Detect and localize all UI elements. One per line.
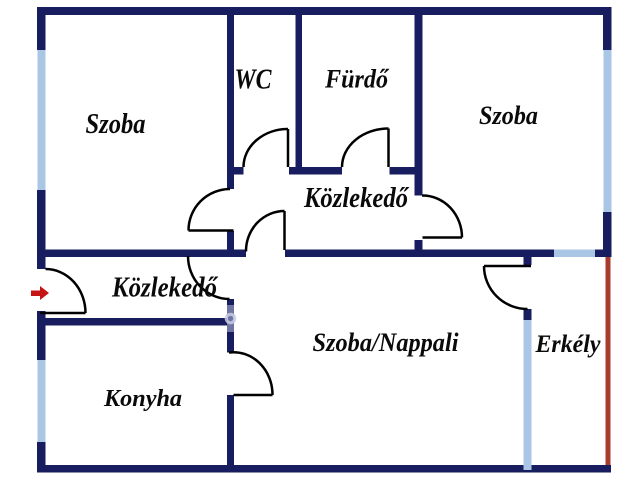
svg-text:Szoba/Nappali: Szoba/Nappali [313, 327, 460, 357]
svg-text:Szoba: Szoba [479, 101, 538, 130]
svg-text:Konyha: Konyha [103, 386, 182, 412]
svg-text:Szoba: Szoba [86, 109, 146, 140]
svg-text:Erkély: Erkély [535, 331, 602, 358]
svg-text:WC: WC [235, 65, 272, 96]
svg-text:Közlekedő: Közlekedő [111, 273, 219, 304]
svg-text:Közlekedő: Közlekedő [303, 183, 410, 214]
svg-text:Fürdő: Fürdő [324, 65, 390, 94]
